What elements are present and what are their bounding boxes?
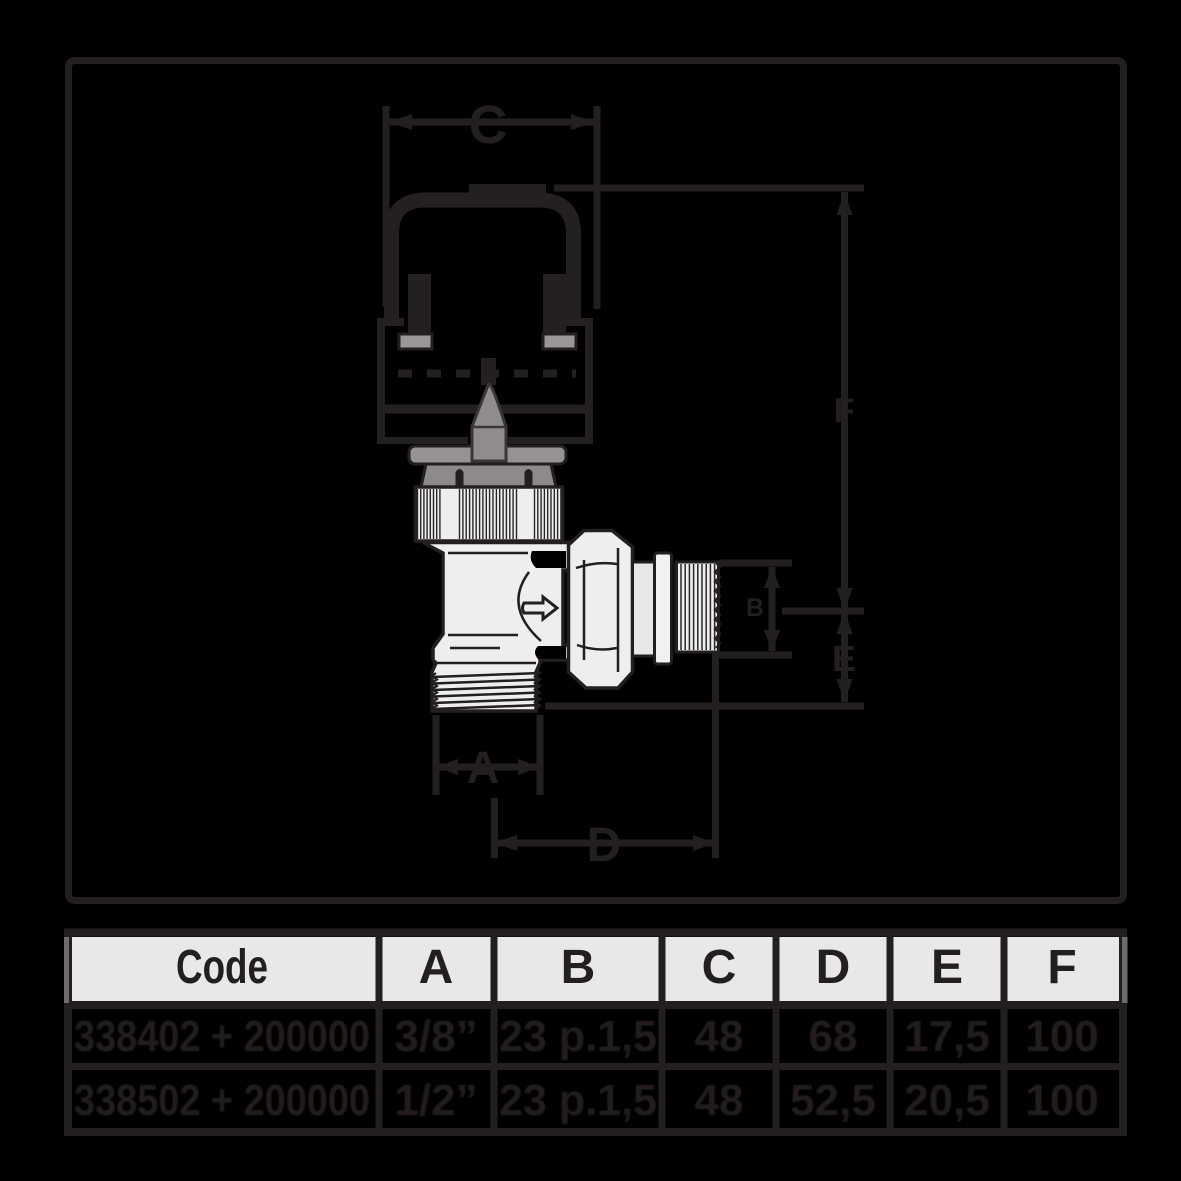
svg-text:F: F — [834, 392, 855, 430]
svg-text:3/8”: 3/8” — [394, 1012, 477, 1061]
svg-text:D: D — [587, 819, 622, 872]
svg-text:338402 + 200000: 338402 + 200000 — [74, 1012, 370, 1061]
svg-text:338502 + 200000: 338502 + 200000 — [74, 1076, 370, 1125]
svg-text:F: F — [1047, 941, 1076, 994]
svg-text:48: 48 — [695, 1076, 744, 1125]
svg-text:1/2”: 1/2” — [394, 1076, 477, 1125]
svg-text:20,5: 20,5 — [904, 1076, 990, 1125]
svg-text:52,5: 52,5 — [790, 1076, 876, 1125]
svg-text:A: A — [419, 941, 454, 994]
svg-text:17,5: 17,5 — [904, 1012, 990, 1061]
svg-text:23 p.1,5: 23 p.1,5 — [499, 1076, 657, 1125]
svg-text:E: E — [832, 638, 856, 679]
svg-text:100: 100 — [1025, 1076, 1098, 1125]
svg-text:100: 100 — [1025, 1012, 1098, 1061]
svg-text:B: B — [561, 941, 596, 994]
svg-text:B: B — [746, 594, 764, 622]
svg-text:C: C — [469, 95, 508, 155]
svg-text:D: D — [816, 941, 851, 994]
svg-text:23 p.1,5: 23 p.1,5 — [499, 1012, 657, 1061]
svg-text:C: C — [702, 941, 737, 994]
svg-text:Code: Code — [176, 941, 268, 994]
svg-text:A: A — [467, 742, 500, 793]
svg-text:48: 48 — [695, 1012, 744, 1061]
svg-text:68: 68 — [809, 1012, 858, 1061]
svg-text:E: E — [931, 941, 963, 994]
